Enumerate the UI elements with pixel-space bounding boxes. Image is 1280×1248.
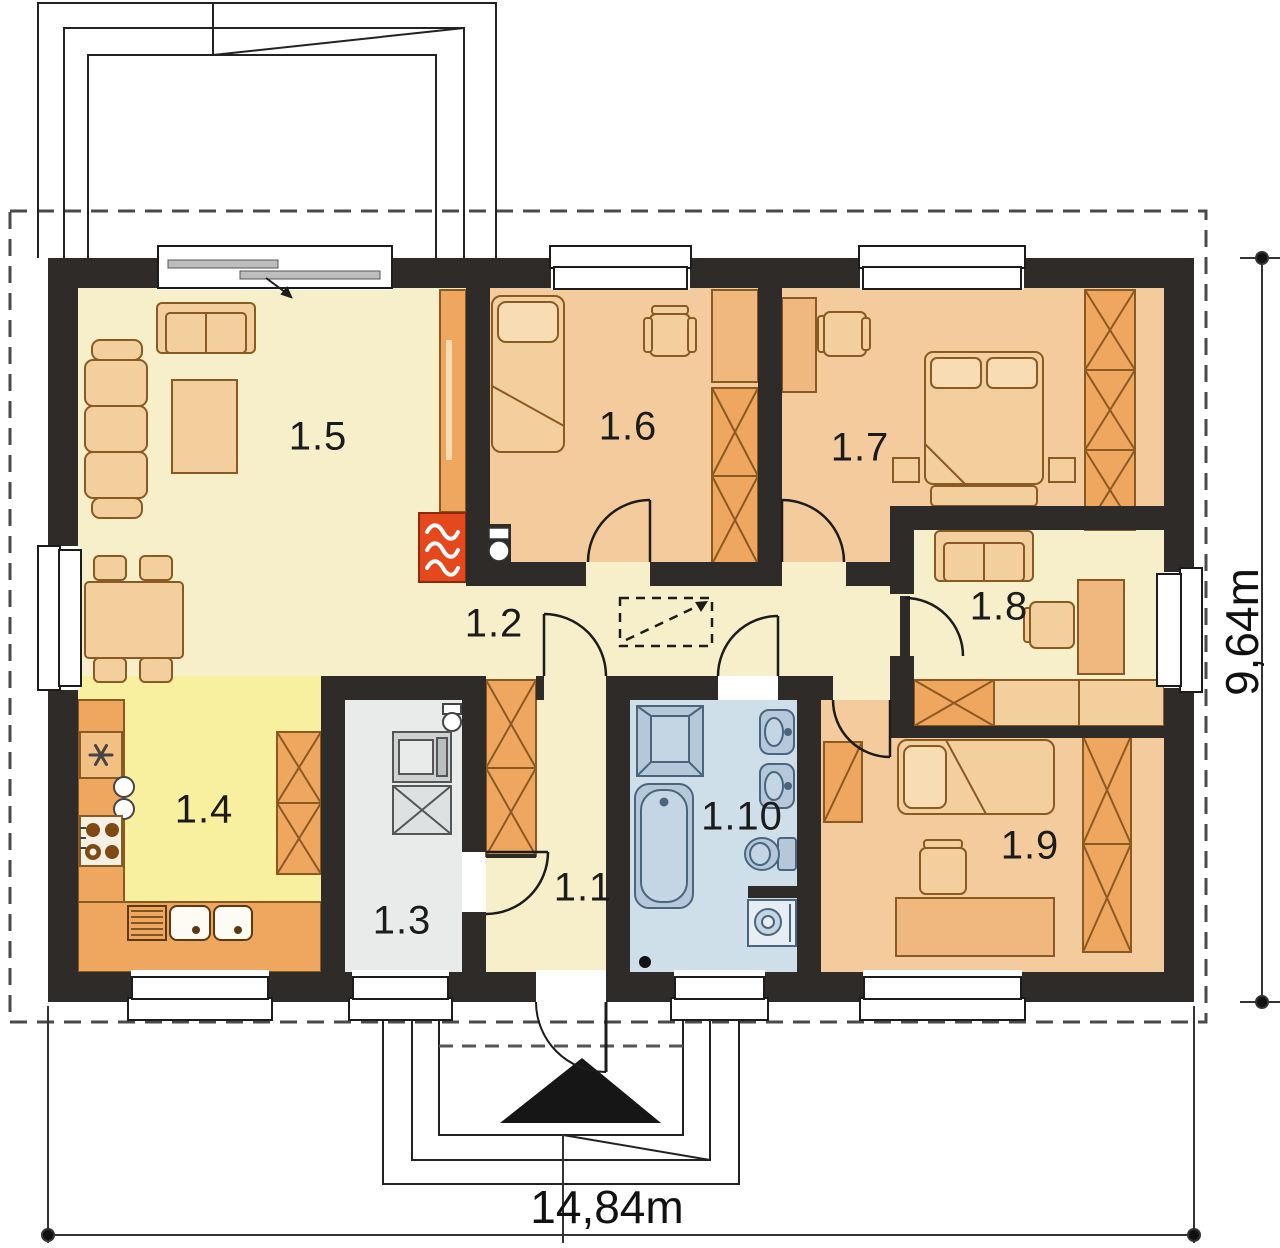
boiler-flue-icon (443, 713, 461, 731)
room-label-1-2: 1.2 (465, 602, 524, 647)
room-label-1-9: 1.9 (1001, 824, 1060, 869)
sink-icon (760, 710, 794, 754)
floor-plan: 1.5 1.6 1.7 1.2 1.8 1.4 1.3 1.1 1.10 1.9… (0, 0, 1280, 1248)
kitchen-wardrobe (277, 732, 321, 874)
nightstand (1049, 458, 1075, 482)
room-label-1-3: 1.3 (373, 899, 432, 944)
corner-sofa (85, 340, 147, 518)
desk (896, 898, 1054, 956)
room-label-1-7: 1.7 (831, 426, 890, 471)
dimension-height-label: 9,64m (1215, 568, 1269, 696)
bathtub-icon (635, 784, 693, 908)
bed-bench (931, 486, 1037, 506)
desk (782, 298, 816, 392)
desk-chair (920, 840, 966, 894)
boiler-icon (393, 732, 451, 782)
window-dining (38, 546, 81, 690)
corridor-wardrobe (486, 680, 536, 856)
window-bedroom3 (860, 977, 1025, 1020)
window-bedroom2 (859, 246, 1025, 289)
window-bedroom1 (550, 246, 691, 289)
room-label-1-10: 1.10 (701, 795, 783, 840)
corner-wardrobe (824, 742, 862, 822)
dimension-width-label: 14,84m (530, 1180, 683, 1234)
room-label-1-4: 1.4 (175, 788, 234, 833)
wardrobe (1085, 290, 1135, 530)
window-kitchen (128, 977, 272, 1020)
desk-chair (818, 312, 870, 356)
front-door (536, 1002, 606, 1072)
built-in-wardrobe (914, 680, 1164, 726)
room-label-1-6: 1.6 (599, 405, 658, 450)
room-label-1-1: 1.1 (554, 866, 613, 911)
desk (1078, 580, 1124, 674)
window-study (1157, 568, 1202, 692)
loveseat-sofa (157, 303, 255, 353)
nightstand (893, 458, 919, 482)
fireplace-icon (419, 513, 466, 582)
window-utility (349, 977, 452, 1020)
floor-plan-drawing (0, 0, 1280, 1248)
toilet-icon (745, 838, 796, 870)
desk-chair (1024, 602, 1074, 648)
shower-icon (637, 706, 703, 776)
stove-detail (489, 528, 509, 561)
desk-chair (644, 306, 696, 356)
coffee-table (172, 380, 237, 473)
equipment-box (393, 786, 451, 834)
desk (712, 290, 758, 382)
kitchen-sink-icon (128, 906, 252, 940)
wardrobe (712, 388, 758, 564)
tv-cabinet (440, 290, 466, 512)
stove-icon (80, 816, 122, 866)
wardrobe (1083, 736, 1131, 952)
room-label-1-8: 1.8 (970, 585, 1029, 630)
window-bathroom (671, 977, 768, 1020)
kitchen-hob-circle (114, 777, 134, 797)
terrace-outline (38, 3, 496, 258)
washing-machine-icon (748, 900, 796, 946)
floor-drain-icon (639, 956, 651, 968)
room-label-1-5: 1.5 (289, 415, 348, 460)
